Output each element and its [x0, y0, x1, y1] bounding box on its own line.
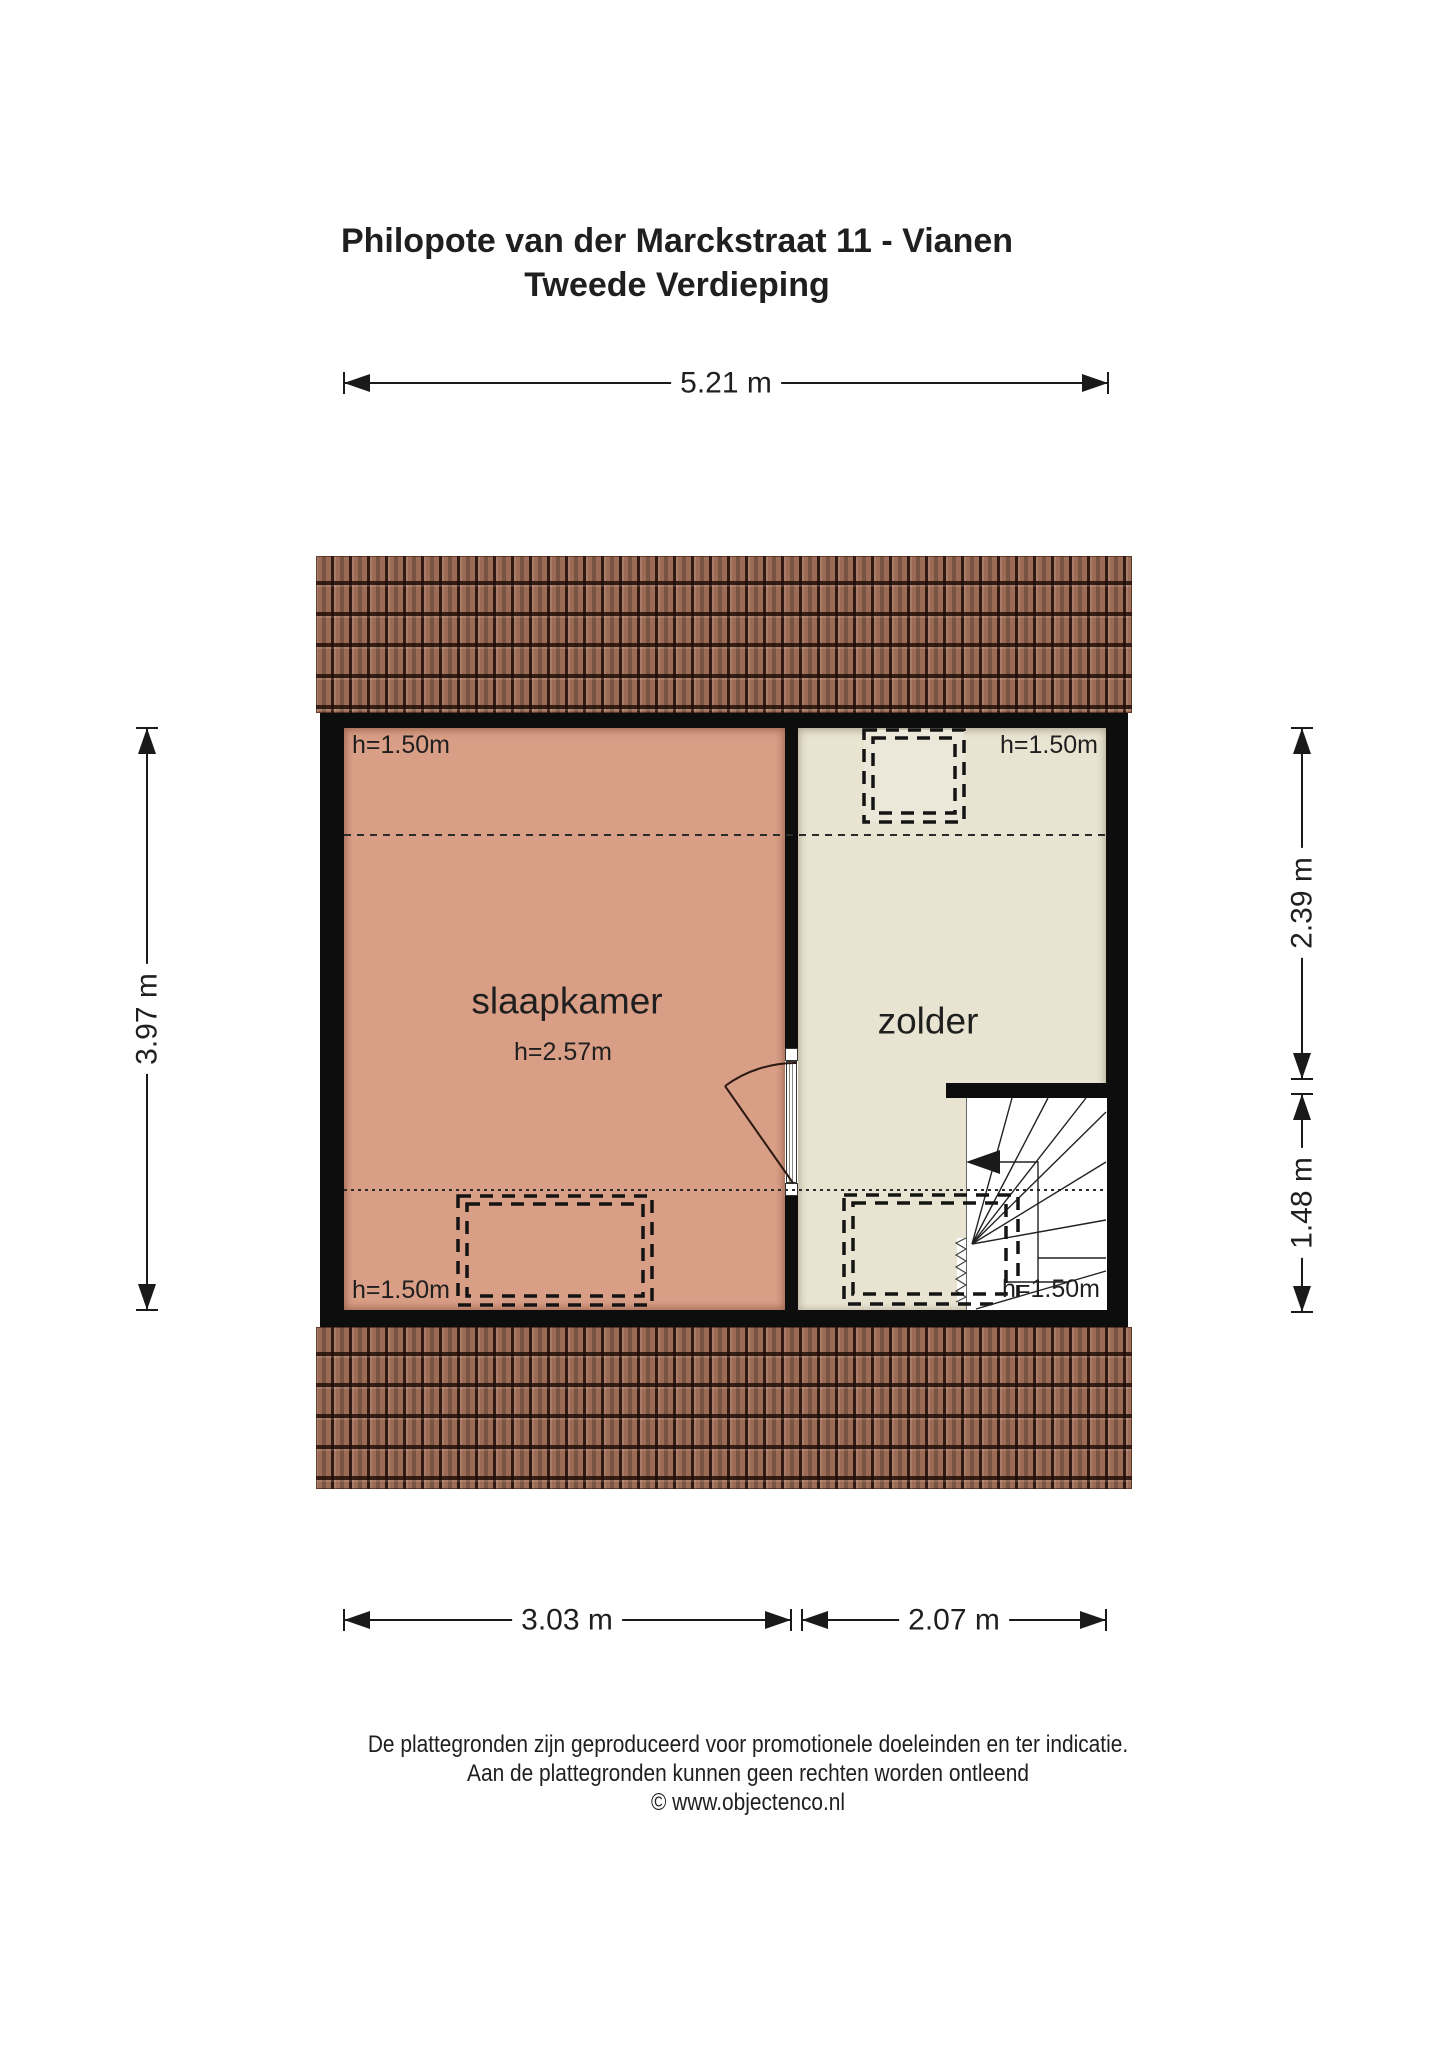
height-note-stairs-bottom: h=1.50m	[1002, 1276, 1100, 1302]
dim-label-top-width: 5.21 m	[671, 366, 781, 400]
dim-label-right-lower: 1.48 m	[1285, 1148, 1319, 1258]
height-note-attic-top: h=1.50m	[1000, 732, 1098, 758]
room-label-bedroom: slaapkamer	[471, 983, 662, 1022]
dim-label-bottom-left: 3.03 m	[512, 1603, 622, 1637]
height-note-bedroom-bottom: h=1.50m	[352, 1277, 450, 1303]
room-label-attic: zolder	[878, 1003, 979, 1042]
dim-label-left-height: 3.97 m	[130, 964, 164, 1074]
footer-disclaimer-2: Aan de plattegronden kunnen geen rechten…	[467, 1761, 1029, 1786]
floorplan-page: Philopote van der Marckstraat 11 - Viane…	[0, 0, 1449, 2048]
door-swing	[725, 1063, 797, 1183]
skylight-box-attic-bottom	[844, 1195, 1018, 1304]
ceiling-height-bedroom: h=2.57m	[514, 1039, 612, 1065]
staircase	[956, 1098, 1106, 1302]
footer-copyright: © www.objectenco.nl	[651, 1790, 845, 1815]
dim-label-right-upper: 2.39 m	[1285, 848, 1319, 958]
stair-direction-arrow-icon	[966, 1150, 1000, 1174]
height-note-bedroom-top: h=1.50m	[352, 732, 450, 758]
dim-label-bottom-right: 2.07 m	[899, 1603, 1009, 1637]
skylight-box-bedroom-bottom	[458, 1196, 652, 1305]
footer-disclaimer-1: De plattegronden zijn geproduceerd voor …	[368, 1732, 1128, 1757]
skylight-box-attic-top	[864, 730, 964, 822]
